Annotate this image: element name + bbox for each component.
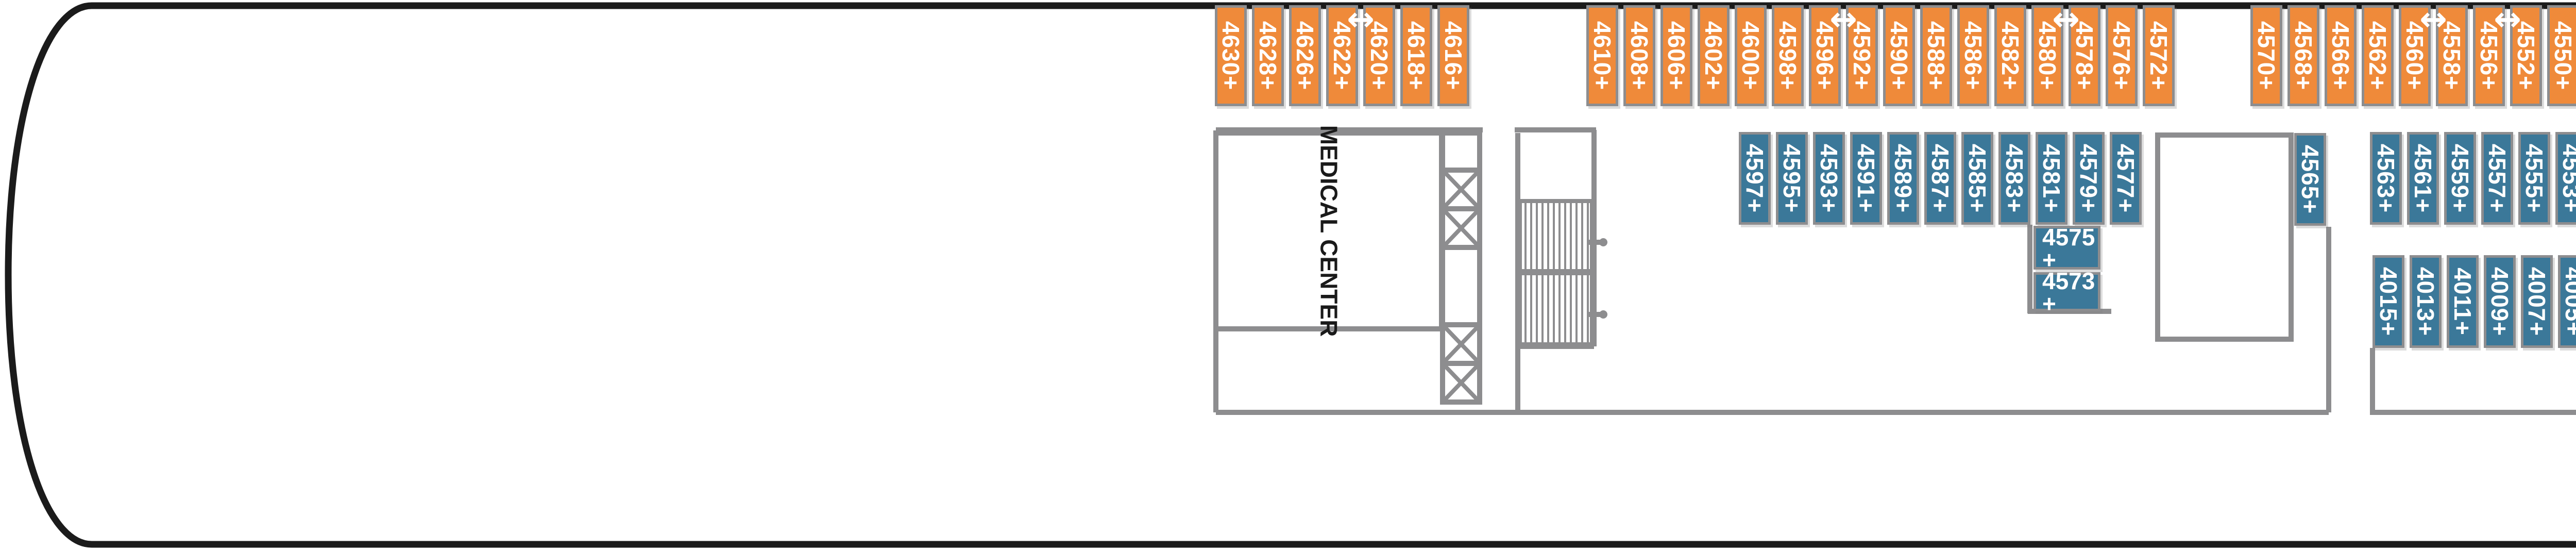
transfer-arrow-icon: ↔ xyxy=(2417,3,2450,36)
transfer-arrow-icon: ↔ xyxy=(2491,3,2524,36)
transfer-arrow-icon: ↔ xyxy=(1827,3,1860,36)
transfer-arrow-icon: ↔ xyxy=(1344,3,1377,36)
arrow-layer: ↔↔↔↔↔↔ xyxy=(0,0,2576,550)
deck-plan: MEDICAL CENTER 4630+4628+4626+4622+4620+… xyxy=(0,0,2576,550)
transfer-arrow-icon: ↔ xyxy=(2049,3,2082,36)
